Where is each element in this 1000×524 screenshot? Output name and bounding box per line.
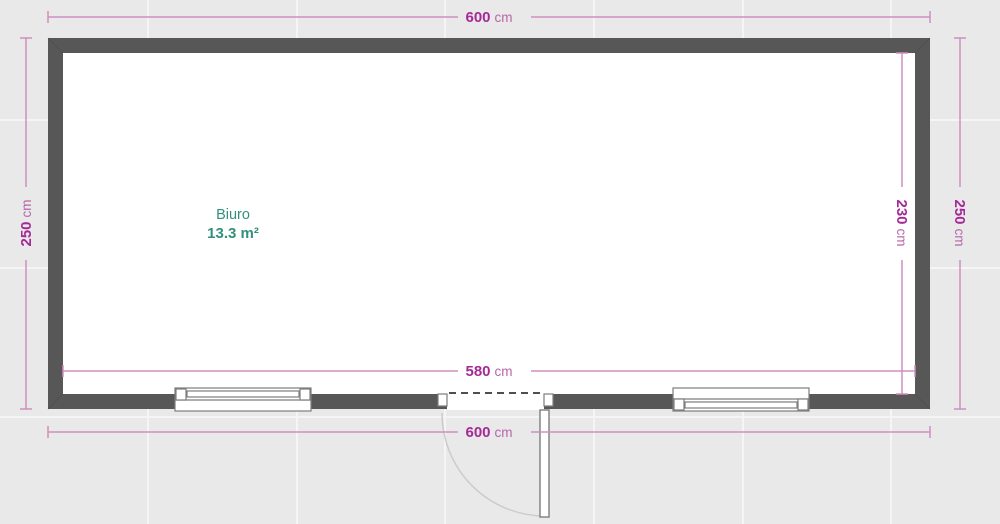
window-right-jamb-a xyxy=(674,399,684,410)
room-name[interactable]: Biuro xyxy=(216,207,250,223)
window-right[interactable] xyxy=(673,388,809,411)
door-opening xyxy=(447,393,544,410)
dimension-top-label[interactable]: 600cm xyxy=(465,9,512,26)
window-right-jamb-b xyxy=(798,399,808,410)
room-floor[interactable] xyxy=(63,53,915,394)
door-leaf[interactable] xyxy=(540,410,549,517)
floor-plan-canvas: Biuro 13.3 m² 600cm 250cm xyxy=(0,0,1000,524)
dimension-bottom-outer-label[interactable]: 600cm xyxy=(465,424,512,441)
dimension-left-label[interactable]: 250cm xyxy=(18,199,35,246)
dimension-bottom-inner-label[interactable]: 580cm xyxy=(465,363,512,380)
dimension-right-inner-label[interactable]: 230cm xyxy=(893,199,910,246)
window-left-jamb-b xyxy=(300,389,310,400)
window-right-glazing xyxy=(685,402,797,408)
window-left-jamb-a xyxy=(176,389,186,400)
window-left[interactable] xyxy=(175,388,311,411)
door-jamb-right xyxy=(544,394,553,406)
door-jamb-left xyxy=(438,394,447,406)
room-area: 13.3 m² xyxy=(207,225,259,242)
window-left-glazing xyxy=(187,391,299,397)
dimension-right-outer-label[interactable]: 250cm xyxy=(951,199,968,246)
